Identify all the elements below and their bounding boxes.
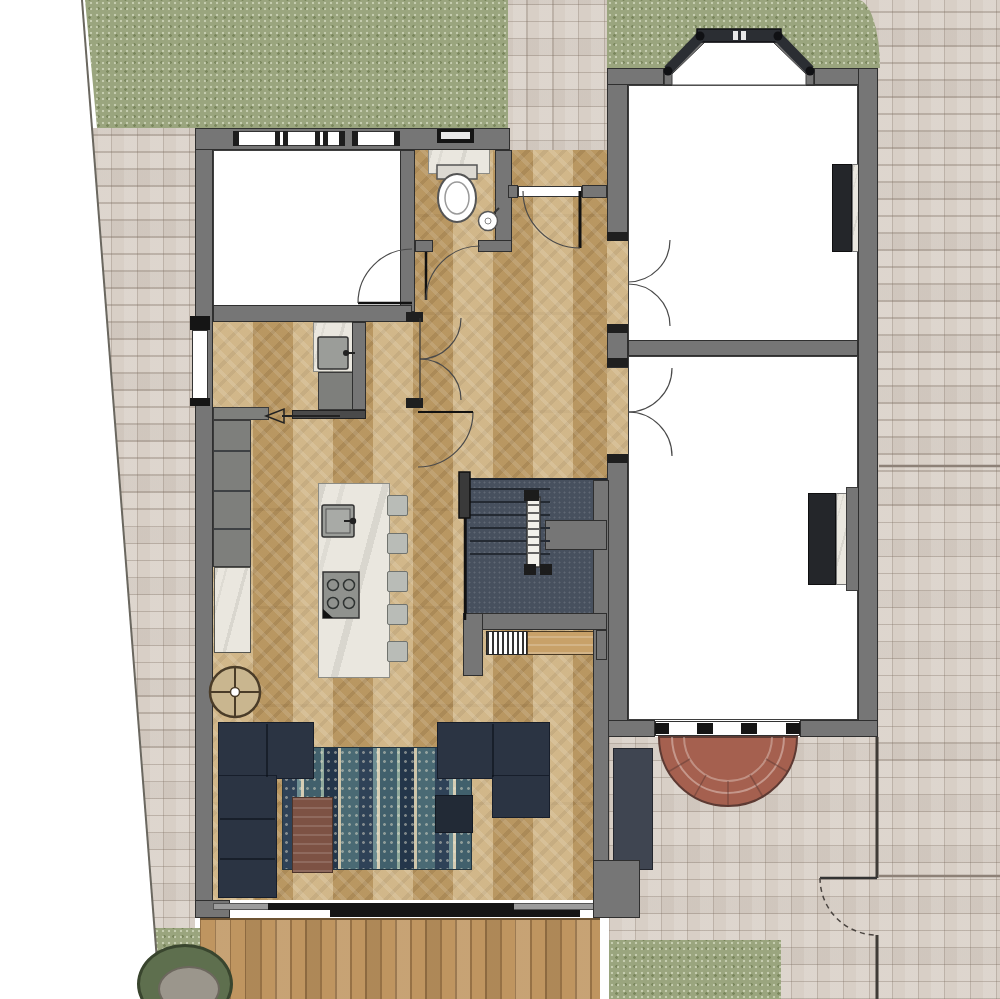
- hob: [323, 572, 359, 618]
- corner-basin: [479, 208, 500, 231]
- door-swings: [358, 191, 672, 467]
- peninsula-sink: [318, 337, 355, 369]
- manhole-cover: [210, 667, 260, 717]
- island-sink: [322, 505, 356, 537]
- paving-joints: [879, 466, 1000, 876]
- stair-balustrade: [459, 472, 552, 620]
- toilet: [437, 165, 477, 222]
- floor-plan: [0, 0, 1000, 999]
- direction-arrow: [266, 409, 340, 423]
- window-mullions-utility: [233, 131, 400, 146]
- garden-gate: [820, 737, 877, 999]
- bay-window: [664, 29, 815, 85]
- annotation-overlay: [0, 0, 1000, 999]
- brick-step: [659, 737, 797, 806]
